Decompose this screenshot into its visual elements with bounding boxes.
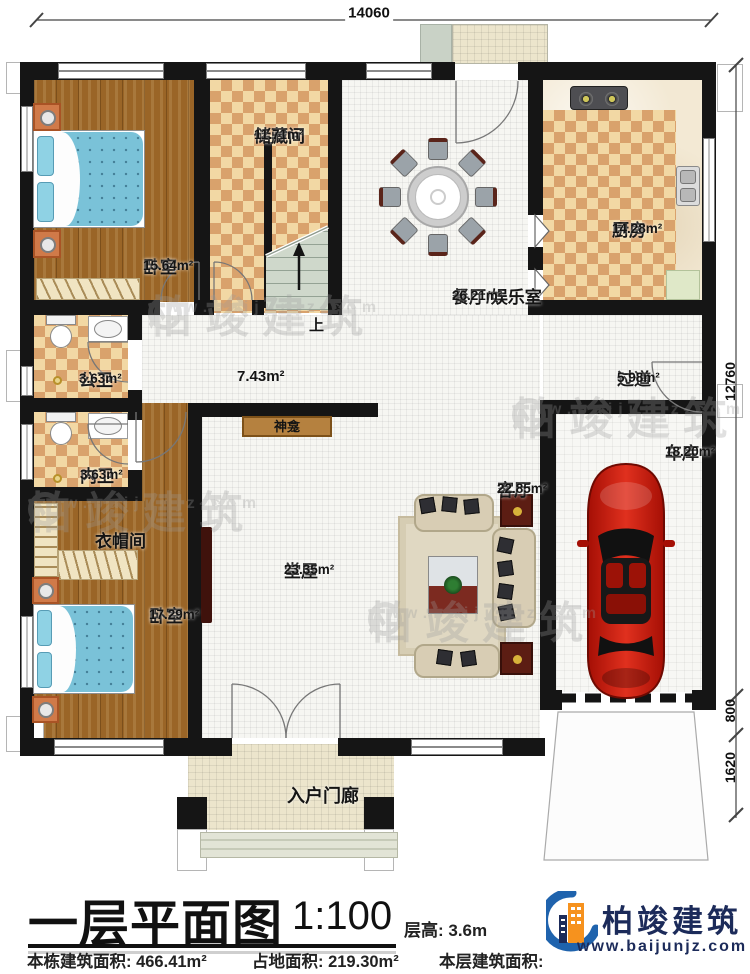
- stairs-up-arrow: [266, 227, 328, 290]
- door-arc-porch-left: [232, 684, 286, 738]
- brand-name: 柏竣建筑: [602, 896, 742, 941]
- door-arc-dining-back: [456, 81, 518, 143]
- car-top-view: [576, 456, 676, 704]
- dim-right-mid: 800: [722, 699, 738, 722]
- brand-url: www.baijunjz.com: [577, 938, 747, 956]
- floor-plan-page: 神龛: [0, 0, 750, 974]
- door-arc-storage: [214, 262, 252, 300]
- floor-area: 本层建筑面积: 198.25m²: [439, 948, 547, 974]
- kitchen-door-leaf: [535, 215, 549, 247]
- dim-right-main: 12760: [722, 362, 738, 401]
- door-arc-porch-right: [286, 684, 340, 738]
- door-arc-private-corridor: [136, 412, 186, 462]
- driveway: [544, 712, 708, 860]
- dim-top: 14060: [345, 5, 393, 22]
- car-svg: [576, 456, 676, 704]
- shrine-shelf: 神龛: [242, 416, 332, 437]
- dim-right-low: 1620: [722, 752, 738, 783]
- title-block: 一层平面图 1:100 层高: 3.6m 本栋建筑面积: 466.41m² 占地…: [0, 878, 750, 974]
- door-arc-inner-bath: [88, 424, 128, 464]
- area-summary: 本栋建筑面积: 466.41m² 占地面积: 219.30m² 本层建筑面积: …: [27, 946, 547, 972]
- floor-height: 层高: 3.6m: [404, 916, 487, 941]
- shrine-label: 神龛: [274, 419, 300, 434]
- land-area: 占地面积: 219.30m²: [252, 948, 399, 972]
- total-area: 本栋建筑面积: 466.41m²: [27, 948, 207, 972]
- plan-scale: 1:100: [292, 894, 392, 939]
